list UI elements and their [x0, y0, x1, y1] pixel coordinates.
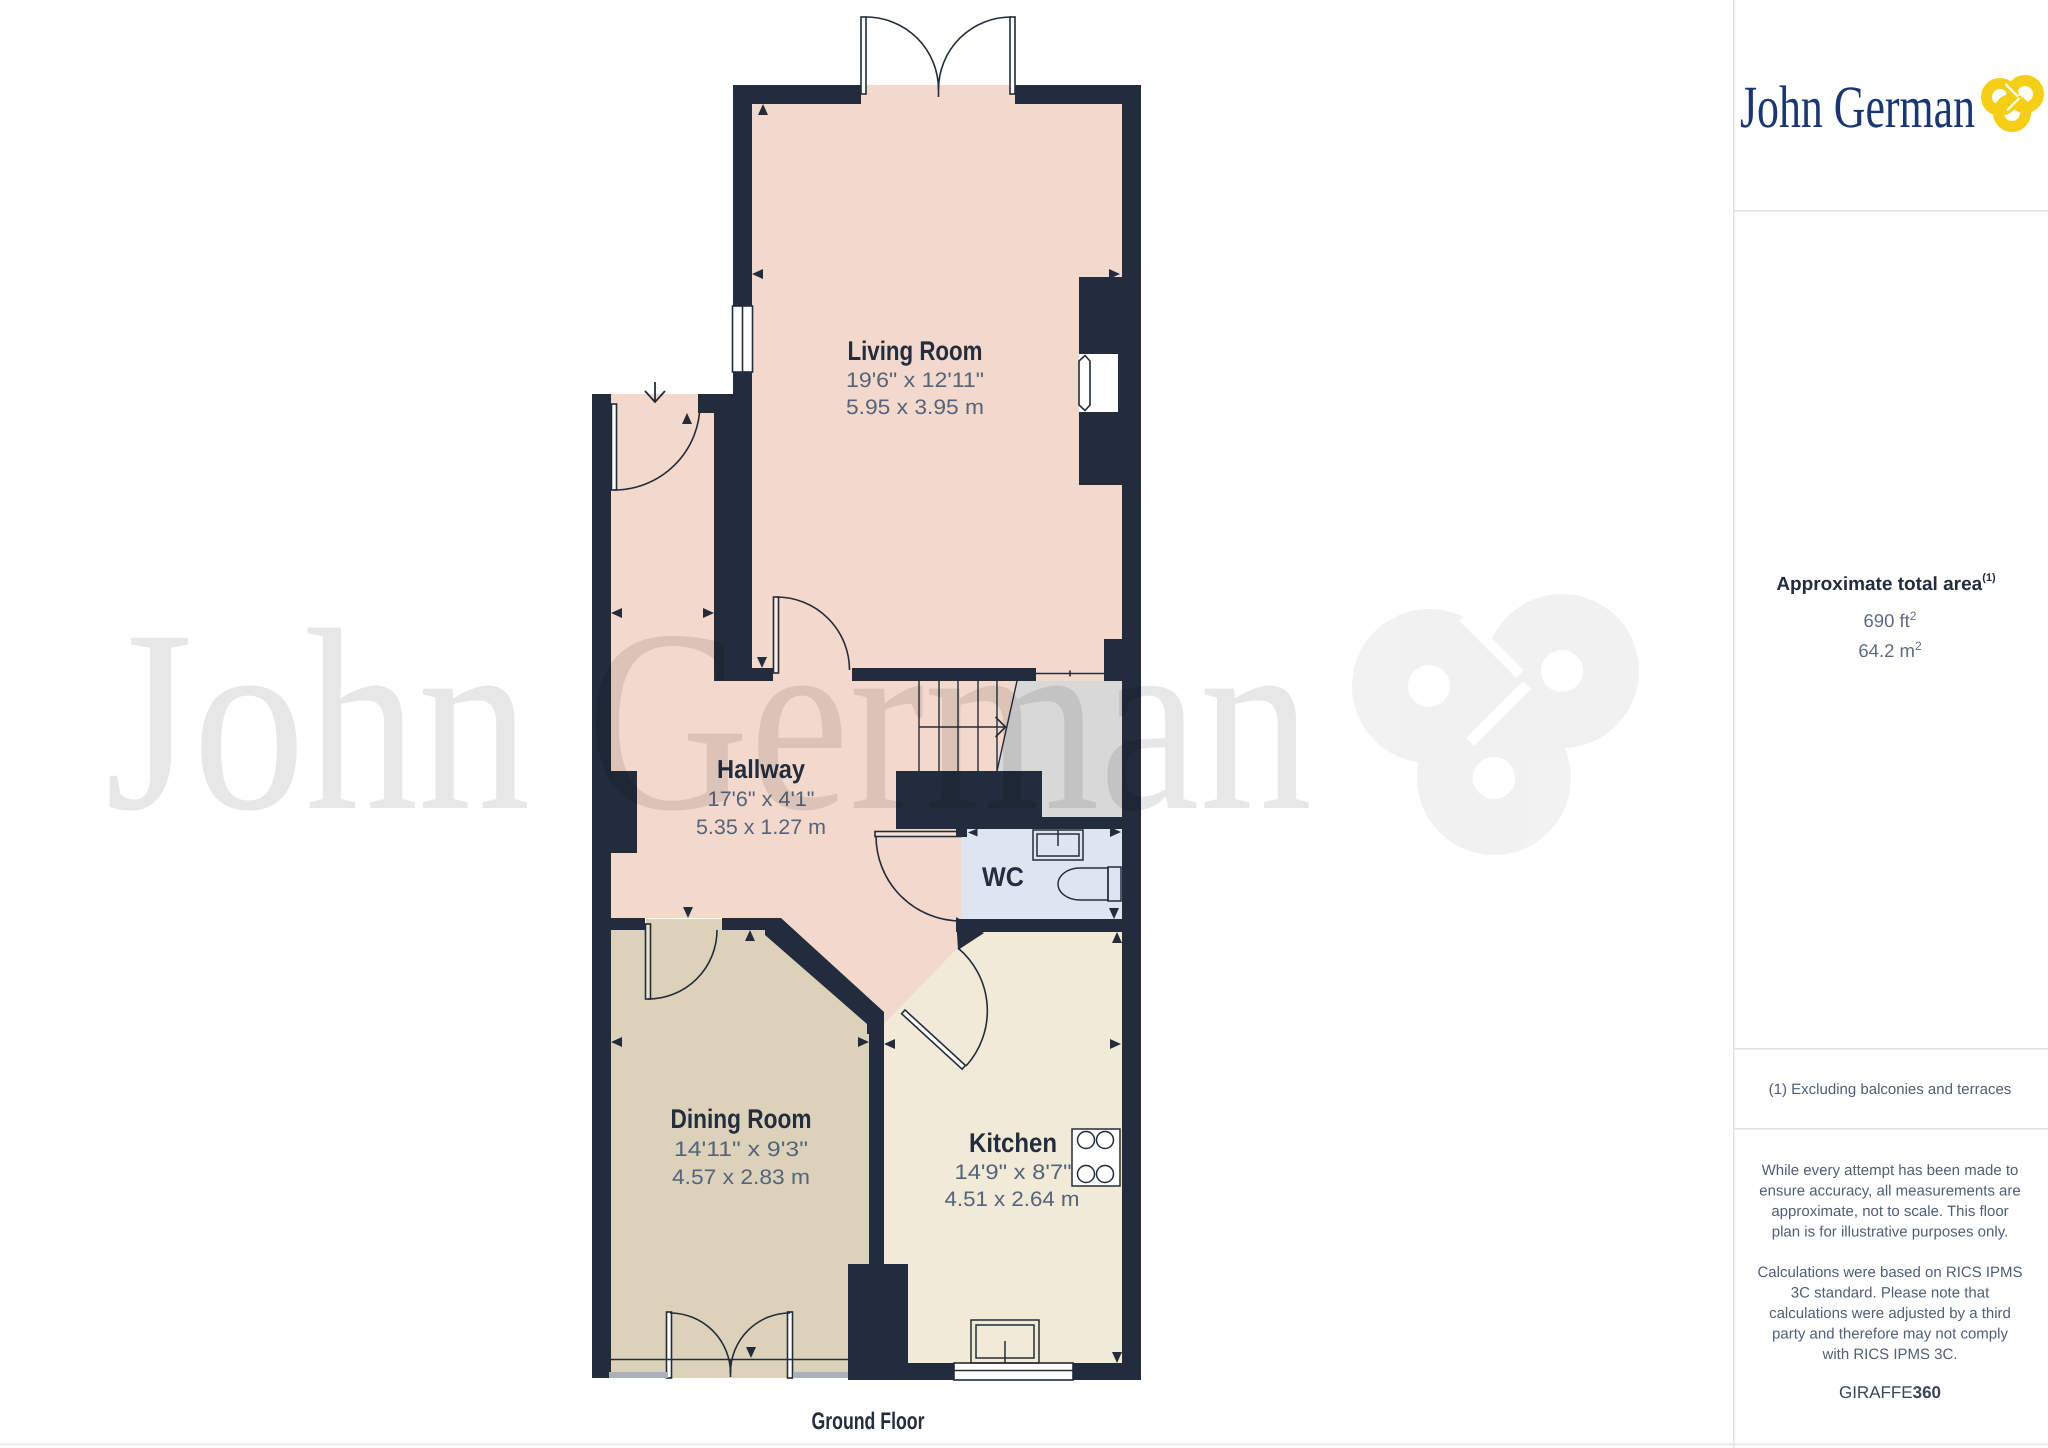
svg-text:While every attempt has been m: While every attempt has been made to: [1762, 1162, 2019, 1179]
svg-text:Calculations were based on RIC: Calculations were based on RICS IPMS: [1757, 1264, 2022, 1281]
svg-text:Dining Room: Dining Room: [671, 1104, 812, 1134]
svg-text:with RICS IPMS 3C.: with RICS IPMS 3C.: [1821, 1346, 1957, 1363]
svg-text:4.51 x 2.64 m: 4.51 x 2.64 m: [945, 1188, 1080, 1211]
svg-text:GIRAFFE360: GIRAFFE360: [1839, 1383, 1941, 1402]
svg-text:John German: John German: [1740, 74, 1975, 140]
svg-text:19'6" x 12'11": 19'6" x 12'11": [846, 369, 984, 392]
svg-text:calculations were adjusted by: calculations were adjusted by a third: [1769, 1305, 2011, 1322]
svg-text:5.95 x 3.95 m: 5.95 x 3.95 m: [846, 396, 984, 419]
svg-text:14'9" x 8'7": 14'9" x 8'7": [955, 1161, 1072, 1184]
svg-text:John German: John German: [105, 577, 1312, 865]
svg-text:party and therefore may not co: party and therefore may not comply: [1772, 1326, 2008, 1343]
svg-text:plan is for illustrative purpo: plan is for illustrative purposes only.: [1772, 1224, 2009, 1241]
svg-text:64.2 m2: 64.2 m2: [1858, 639, 1922, 661]
svg-text:3C standard. Please note that: 3C standard. Please note that: [1791, 1285, 1990, 1302]
svg-text:4.57 x 2.83 m: 4.57 x 2.83 m: [672, 1166, 810, 1189]
svg-text:Living Room: Living Room: [848, 336, 983, 366]
svg-text:ensure accuracy, all measureme: ensure accuracy, all measurements are: [1759, 1183, 2021, 1200]
svg-text:Ground Floor: Ground Floor: [812, 1408, 925, 1435]
svg-text:(1) Excluding balconies and te: (1) Excluding balconies and terraces: [1769, 1081, 2012, 1098]
svg-text:Kitchen: Kitchen: [969, 1128, 1057, 1158]
svg-text:Approximate total area(1): Approximate total area(1): [1776, 572, 1996, 595]
svg-text:WC: WC: [982, 862, 1024, 892]
svg-text:690 ft2: 690 ft2: [1864, 609, 1917, 631]
svg-text:14'11" x 9'3": 14'11" x 9'3": [674, 1138, 808, 1161]
svg-text:approximate, not to scale. Thi: approximate, not to scale. This floor: [1771, 1203, 2008, 1220]
